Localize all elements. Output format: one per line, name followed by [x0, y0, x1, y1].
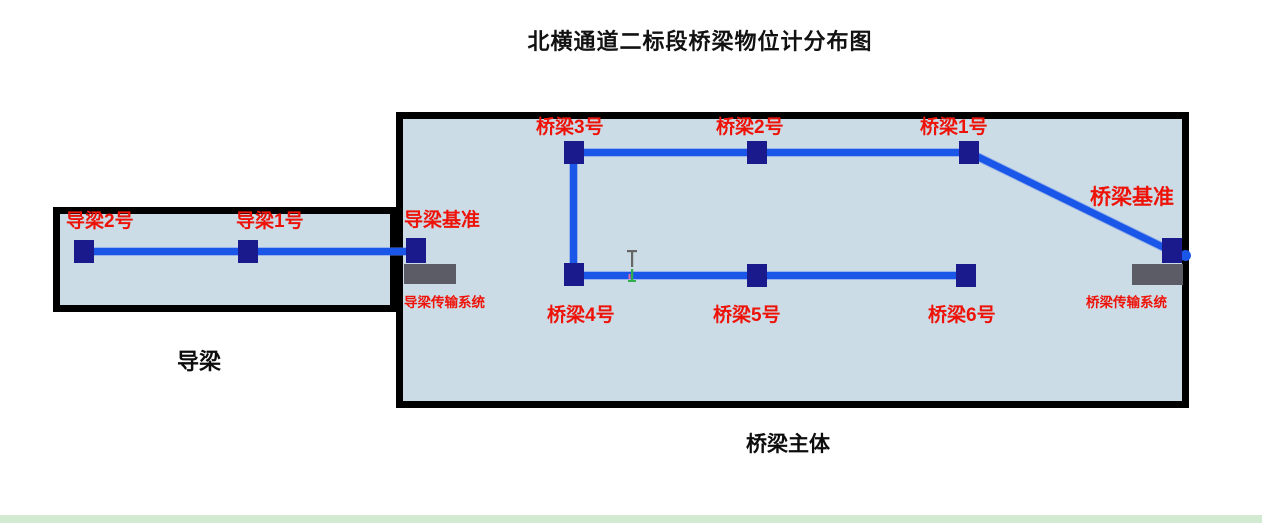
label-bridge-node-1: 桥梁1号 — [920, 118, 988, 139]
label-guide-base: 导梁基准 — [404, 211, 480, 232]
sensor-node-bridge-base — [1162, 238, 1182, 263]
sensor-node-bridge-3 — [564, 141, 584, 164]
sensor-node-guide-1 — [238, 240, 258, 263]
caption-bridge-body: 桥梁主体 — [746, 428, 830, 458]
diagram-title: 北横通道二标段桥梁物位计分布图 — [390, 24, 1010, 56]
label-bridge-node-5: 桥梁5号 — [713, 306, 781, 327]
diagram-canvas: 北横通道二标段桥梁物位计分布图 导梁2号 导梁1号 导梁基准 桥梁3号 桥梁2号… — [0, 0, 1262, 526]
label-guide-node-1: 导梁1号 — [236, 212, 304, 233]
label-guide-node-2: 导梁2号 — [66, 212, 134, 233]
label-guide-transmission: 导梁传输系统 — [404, 291, 485, 311]
footer-green-strip — [0, 515, 1262, 523]
sensor-node-bridge-4 — [564, 263, 584, 286]
bridge-top-cable — [574, 149, 969, 156]
label-bridge-transmission: 桥梁传输系统 — [1086, 291, 1167, 311]
caption-guide-beam: 导梁 — [177, 344, 221, 376]
label-bridge-node-2: 桥梁2号 — [716, 118, 784, 139]
label-bridge-node-3: 桥梁3号 — [536, 118, 604, 139]
label-bridge-node-4: 桥梁4号 — [547, 306, 615, 327]
sensor-node-bridge-5 — [747, 264, 767, 287]
sensor-node-guide-base — [406, 238, 426, 263]
sensor-node-bridge-2 — [747, 141, 767, 164]
bridge-vertical-cable — [570, 152, 577, 274]
bridge-body-panel — [396, 112, 1189, 408]
sensor-node-guide-2 — [74, 240, 94, 263]
guide-transmission-box — [404, 264, 456, 284]
label-bridge-base: 桥梁基准 — [1090, 186, 1174, 209]
sensor-node-bridge-1 — [959, 141, 979, 164]
sensor-node-bridge-6 — [956, 264, 976, 287]
text-ibeam-cursor — [625, 249, 639, 283]
label-bridge-node-6: 桥梁6号 — [928, 306, 996, 327]
bridge-transmission-box — [1132, 264, 1183, 285]
